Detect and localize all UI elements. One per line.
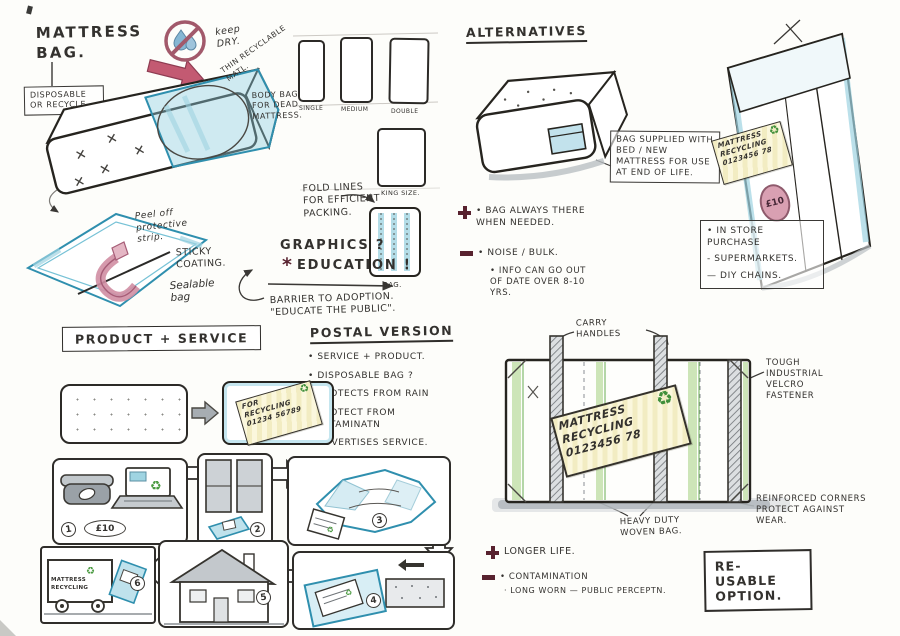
- store-heading: • IN STORE PURCHASE: [707, 226, 817, 249]
- mattress-with-pocket-sketch: [458, 48, 633, 213]
- step-number-1: 1: [60, 521, 77, 538]
- size-label-medium: MEDIUM: [341, 106, 368, 113]
- con-note: • CONTAMINATION: [500, 572, 588, 583]
- postal-version-heading: POSTAL VERSION: [310, 323, 454, 344]
- education-label: EDUCATION !: [297, 258, 412, 273]
- size-label-double: DOUBLE: [391, 108, 418, 115]
- postal-point: • DISPOSABLE BAG ?: [308, 371, 460, 383]
- bag-pocket: [548, 124, 585, 154]
- con-sub-note: · LONG WORN — PUBLIC PERCEPTN.: [504, 586, 694, 596]
- alternatives-heading: ALTERNATIVES: [466, 23, 587, 44]
- plus-icon: [458, 206, 471, 219]
- bagged-mattress-sketch: ♻ FOR RECYCLING 01234 56789: [222, 381, 334, 445]
- con-row: • CONTAMINATION: [482, 572, 588, 583]
- minus-icon: [460, 251, 473, 256]
- storyboard-step5-kerbside: 5: [158, 540, 289, 628]
- insert-mattress-sketch: ♻: [294, 553, 453, 628]
- pro-row: • BAG ALWAYS THERE WHEN NEEDED.: [458, 206, 592, 229]
- storyboard-step1-order: ♻ £10 1: [52, 458, 188, 545]
- size-sketch-single: [298, 40, 325, 102]
- size-sketch-double: [388, 38, 429, 105]
- bare-mattress-sketch: [60, 384, 188, 444]
- arrow-bagging: [192, 402, 218, 424]
- recycle-icon: ♻: [86, 566, 95, 577]
- house-sketch: [160, 542, 287, 626]
- store-purchase-note: • IN STORE PURCHASE - SUPERMARKETS. — DI…: [700, 220, 824, 289]
- phone-laptop-sketch: ♻: [54, 460, 186, 516]
- store-item-diy: — DIY CHAINS.: [707, 271, 817, 283]
- heavy-duty-note: HEAVY DUTY WOVEN BAG.: [620, 515, 693, 540]
- peel-strip-note: Peel off protective strip.: [134, 204, 209, 246]
- sketchbook-page: MATTRESS BAG. DISPOSABLE OR RECYCLE keep…: [0, 0, 900, 636]
- sealable-bag-note: Sealable bag: [169, 276, 233, 304]
- size-sketch-medium: [340, 37, 373, 103]
- bag-label: ♻ FOR RECYCLING 01234 56789: [235, 380, 323, 446]
- asterisk-icon: *: [282, 258, 292, 273]
- con-row: • NOISE / BULK.: [460, 248, 558, 260]
- reusable-option-label: RE-USABLE OPTION.: [703, 549, 812, 612]
- storyboard-step4-insert: ♻ 4: [292, 551, 455, 630]
- storyboard-step6-collection: ♻ MATTRESS RECYCLING 6: [40, 546, 156, 624]
- page-corner-fold: [0, 620, 16, 636]
- storyboard-step3-unpack: ♻ 3: [287, 456, 451, 546]
- sticky-coating-note: STICKY COATING.: [176, 245, 253, 272]
- bag-caption: BAG.: [383, 281, 402, 289]
- store-item-supermarkets: - SUPERMARKETS.: [707, 254, 817, 266]
- con-note: • NOISE / BULK.: [478, 248, 558, 260]
- truck-sign: MATTRESS RECYCLING: [51, 576, 87, 593]
- info-note: • INFO CAN GO OUT OF DATE OVER 8-10 YRS.: [490, 266, 590, 299]
- pro-note: LONGER LIFE.: [504, 546, 575, 558]
- postal-point: • SERVICE + PRODUCT.: [308, 352, 460, 364]
- plus-icon: [486, 546, 499, 559]
- product-service-heading: PRODUCT + SERVICE: [62, 325, 261, 352]
- minus-icon: [482, 575, 495, 580]
- velcro-note: TOUGH INDUSTRIAL VELCRO FASTENER: [766, 358, 850, 402]
- size-sketch-king: [377, 128, 426, 187]
- storyboard-step2-delivery: 2: [197, 453, 273, 547]
- price-sticker-value: £10: [765, 196, 786, 210]
- pro-row: LONGER LIFE.: [486, 546, 575, 559]
- size-label-single: SINGLE: [299, 105, 323, 112]
- education-note: * EDUCATION !: [282, 258, 412, 273]
- graphics-note: GRAPHICS ?: [280, 238, 385, 253]
- unfolded-bag-sketch: ♻: [289, 458, 449, 544]
- reinforced-note: REINFORCED CORNERS PROTECT AGAINST WEAR.: [756, 494, 870, 527]
- order-price: £10: [84, 520, 126, 537]
- pro-note: • BAG ALWAYS THERE WHEN NEEDED.: [476, 206, 592, 229]
- velcro-strip: [728, 360, 741, 502]
- recycle-icon: ♻: [150, 479, 162, 494]
